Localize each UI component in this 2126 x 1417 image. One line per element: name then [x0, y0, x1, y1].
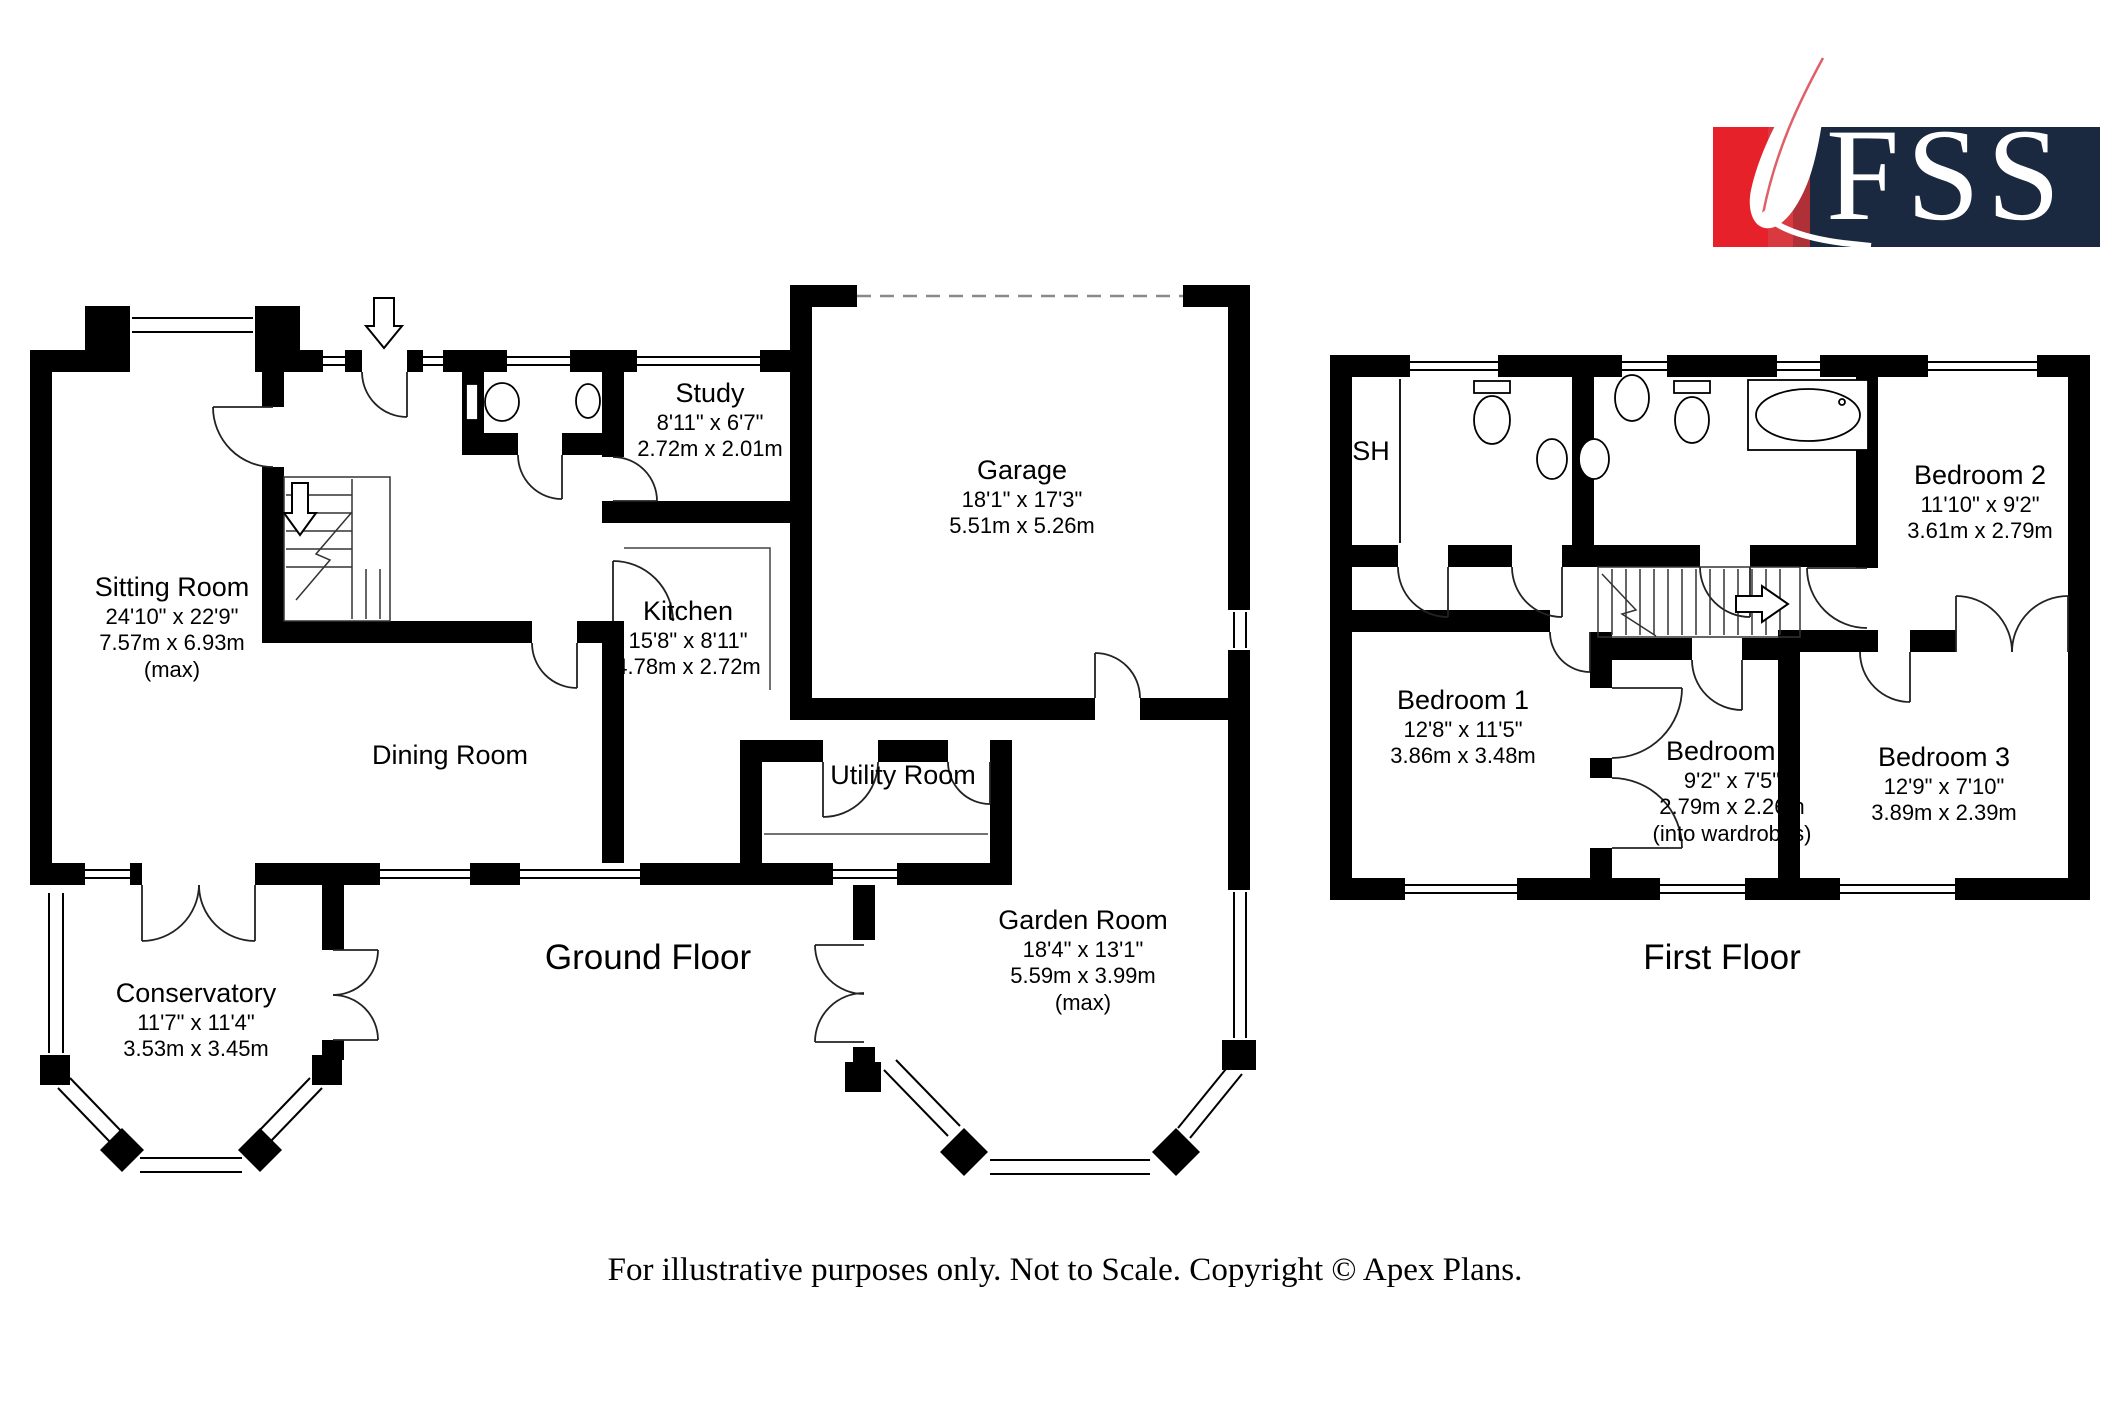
room-dims-imperial: 18'1" x 17'3" [949, 487, 1095, 513]
room-note: (into wardrobes) [1653, 821, 1812, 847]
feather-icon [1713, 40, 1878, 250]
room-label-sitting-room: Sitting Room 24'10" x 22'9" 7.57m x 6.93… [95, 572, 250, 683]
room-dims-metric: 7.57m x 6.93m [95, 630, 250, 656]
disclaimer-text: For illustrative purposes only. Not to S… [608, 1252, 1523, 1289]
room-name: Kitchen [615, 596, 761, 628]
room-dims-imperial: 9'2" x 7'5" [1653, 768, 1812, 794]
room-dims-metric: 2.72m x 2.01m [637, 436, 783, 462]
room-name: Bedroom 1 [1390, 685, 1536, 717]
room-dims-imperial: 11'7" x 11'4" [116, 1010, 277, 1036]
room-dims-imperial: 12'8" x 11'5" [1390, 717, 1536, 743]
room-dims-imperial: 24'10" x 22'9" [95, 604, 250, 630]
room-label-dining-room: Dining Room [372, 740, 528, 772]
room-label-bedroom-4: Bedroom 4 9'2" x 7'5" 2.79m x 2.26m (int… [1653, 736, 1812, 847]
ground-stairs [284, 477, 390, 621]
room-dims-metric: 3.53m x 3.45m [116, 1036, 277, 1062]
room-note: (max) [998, 990, 1168, 1016]
first-stairs [1598, 567, 1800, 637]
entrance-arrow-icon [366, 298, 402, 348]
room-label-utility-room: Utility Room [828, 760, 978, 792]
room-dims-imperial: 18'4" x 13'1" [998, 937, 1168, 963]
room-label-bedroom-2: Bedroom 2 11'10" x 9'2" 3.61m x 2.79m [1907, 460, 2053, 545]
room-name: Utility Room [828, 760, 978, 792]
room-label-study: Study 8'11" x 6'7" 2.72m x 2.01m [637, 378, 783, 463]
room-label-conservatory: Conservatory 11'7" x 11'4" 3.53m x 3.45m [116, 978, 277, 1063]
room-dims-imperial: 15'8" x 8'11" [615, 628, 761, 654]
room-name: Bedroom 3 [1871, 742, 2017, 774]
room-name: Garage [949, 455, 1095, 487]
room-dims-metric: 3.61m x 2.79m [1907, 518, 2053, 544]
room-dims-metric: 3.86m x 3.48m [1390, 743, 1536, 769]
room-dims-imperial: 11'10" x 9'2" [1907, 492, 2053, 518]
ground-floor-caption: Ground Floor [545, 938, 751, 978]
room-name: Study [637, 378, 783, 410]
fss-logo: FSS [1713, 40, 2100, 247]
room-dims-metric: 2.79m x 2.26m [1653, 794, 1812, 820]
room-label-garage: Garage 18'1" x 17'3" 5.51m x 5.26m [949, 455, 1095, 540]
room-label-sh: SH [1352, 436, 1390, 468]
floorplan-page: Sitting Room 24'10" x 22'9" 7.57m x 6.93… [0, 0, 2126, 1417]
room-name: Bedroom 4 [1653, 736, 1812, 768]
room-label-bedroom-1: Bedroom 1 12'8" x 11'5" 3.86m x 3.48m [1390, 685, 1536, 770]
room-dims-metric: 3.89m x 2.39m [1871, 800, 2017, 826]
room-note: (max) [95, 657, 250, 683]
room-label-bedroom-3: Bedroom 3 12'9" x 7'10" 3.89m x 2.39m [1871, 742, 2017, 827]
room-name: SH [1352, 436, 1390, 468]
room-dims-metric: 5.51m x 5.26m [949, 513, 1095, 539]
room-dims-imperial: 12'9" x 7'10" [1871, 774, 2017, 800]
room-dims-imperial: 8'11" x 6'7" [637, 410, 783, 436]
room-dims-metric: 5.59m x 3.99m [998, 963, 1168, 989]
room-name: Bedroom 2 [1907, 460, 2053, 492]
room-dims-metric: 4.78m x 2.72m [615, 654, 761, 680]
first-floor-caption: First Floor [1643, 938, 1801, 978]
room-name: Dining Room [372, 740, 528, 772]
room-label-garden-room: Garden Room 18'4" x 13'1" 5.59m x 3.99m … [998, 905, 1168, 1016]
room-name: Sitting Room [95, 572, 250, 604]
ground-fixtures [466, 383, 600, 421]
room-name: Garden Room [998, 905, 1168, 937]
room-name: Conservatory [116, 978, 277, 1010]
first-fixtures [1400, 375, 1868, 543]
room-label-kitchen: Kitchen 15'8" x 8'11" 4.78m x 2.72m [615, 596, 761, 681]
